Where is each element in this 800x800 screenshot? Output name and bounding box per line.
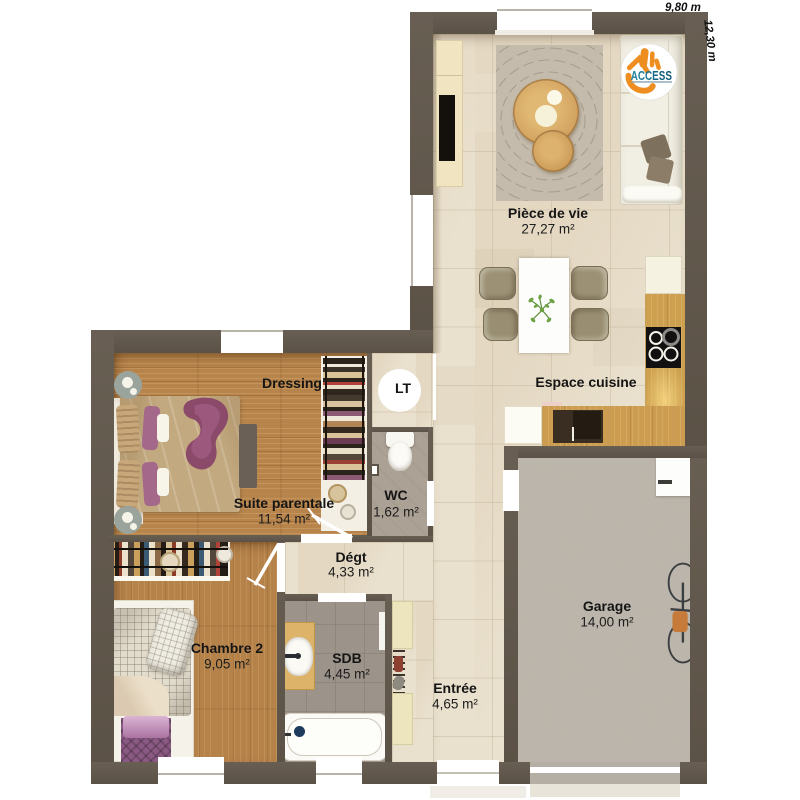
svg-text:ACCESS: ACCESS	[631, 68, 672, 83]
